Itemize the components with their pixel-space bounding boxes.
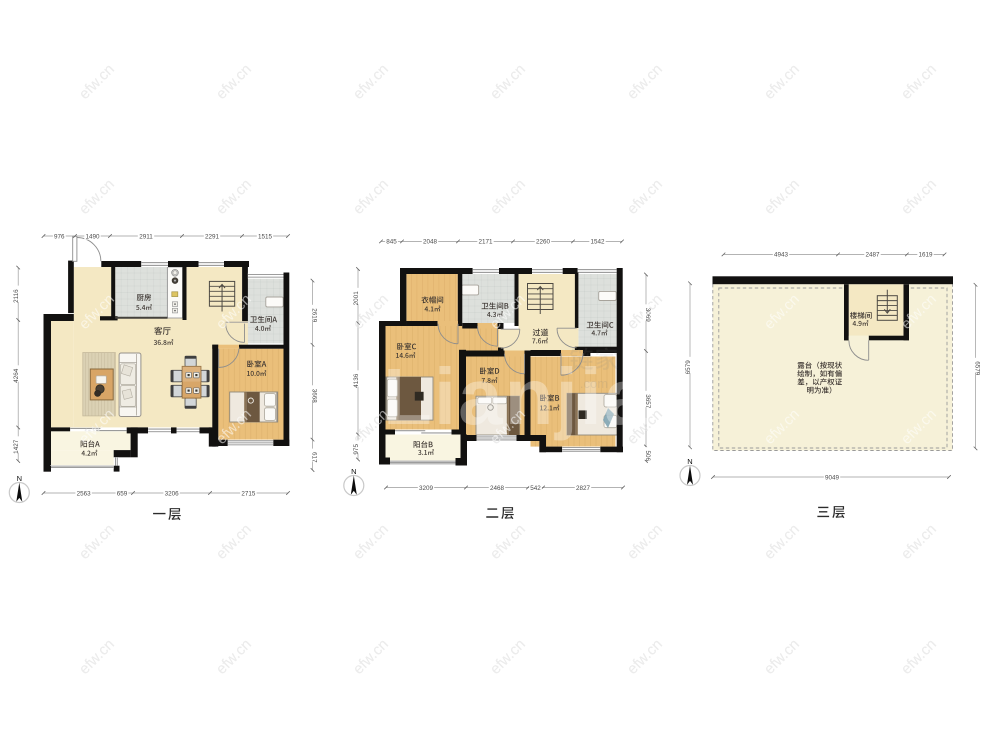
svg-text:.com: .com bbox=[580, 376, 608, 391]
svg-text:efw.cn: efw.cn bbox=[487, 636, 529, 678]
svg-text:6579: 6579 bbox=[685, 360, 692, 375]
svg-text:efw.cn: efw.cn bbox=[624, 291, 666, 333]
svg-text:efw.cn: efw.cn bbox=[487, 521, 529, 563]
svg-text:1490: 1490 bbox=[85, 233, 100, 240]
svg-text:4264: 4264 bbox=[13, 368, 20, 383]
svg-text:efw.cn: efw.cn bbox=[898, 176, 940, 218]
svg-text:542: 542 bbox=[530, 485, 541, 492]
svg-text:6579: 6579 bbox=[974, 361, 981, 376]
svg-text:efw.cn: efw.cn bbox=[898, 521, 940, 563]
svg-text:506: 506 bbox=[644, 451, 651, 462]
svg-text:3209: 3209 bbox=[419, 485, 434, 492]
svg-text:efw.cn: efw.cn bbox=[624, 636, 666, 678]
svg-text:N: N bbox=[687, 457, 692, 466]
svg-text:659: 659 bbox=[117, 490, 128, 497]
svg-text:2563: 2563 bbox=[77, 490, 92, 497]
svg-text:4136: 4136 bbox=[353, 373, 360, 388]
svg-text:N: N bbox=[351, 467, 356, 476]
svg-text:2260: 2260 bbox=[536, 239, 551, 246]
svg-text:efw.cn: efw.cn bbox=[624, 61, 666, 103]
svg-text:845: 845 bbox=[386, 239, 397, 246]
svg-text:efw.cn: efw.cn bbox=[350, 61, 392, 103]
svg-text:efw.cn: efw.cn bbox=[761, 521, 803, 563]
svg-text:1427: 1427 bbox=[13, 439, 20, 454]
svg-text:3206: 3206 bbox=[165, 490, 180, 497]
svg-text:efw.cn: efw.cn bbox=[350, 636, 392, 678]
svg-text:2116: 2116 bbox=[13, 289, 20, 303]
svg-text:efw.cn: efw.cn bbox=[213, 636, 255, 678]
svg-text:2619: 2619 bbox=[311, 308, 318, 323]
svg-text:efw.cn: efw.cn bbox=[898, 636, 940, 678]
svg-text:efw.cn: efw.cn bbox=[624, 176, 666, 218]
svg-text:976: 976 bbox=[54, 233, 65, 240]
svg-text:3668: 3668 bbox=[311, 389, 318, 404]
svg-text:1542: 1542 bbox=[590, 239, 605, 246]
svg-text:efw.cn: efw.cn bbox=[76, 176, 118, 218]
svg-text:efw.cn: efw.cn bbox=[213, 521, 255, 563]
svg-text:2468: 2468 bbox=[490, 485, 505, 492]
svg-text:efw.cn: efw.cn bbox=[761, 636, 803, 678]
svg-text:efw.cn: efw.cn bbox=[76, 636, 118, 678]
svg-text:efw.cn: efw.cn bbox=[487, 176, 529, 218]
svg-text:1515: 1515 bbox=[258, 233, 273, 240]
svg-text:efw.cn: efw.cn bbox=[898, 61, 940, 103]
svg-text:2001: 2001 bbox=[353, 291, 360, 306]
svg-text:2911: 2911 bbox=[139, 233, 153, 240]
svg-text:efw.cn: efw.cn bbox=[487, 61, 529, 103]
svg-text:2048: 2048 bbox=[423, 239, 438, 246]
svg-text:efw.cn: efw.cn bbox=[761, 176, 803, 218]
svg-text:efw.cn: efw.cn bbox=[213, 176, 255, 218]
svg-text:1619: 1619 bbox=[918, 252, 933, 259]
svg-text:N: N bbox=[17, 474, 22, 483]
svg-text:9049: 9049 bbox=[825, 474, 840, 481]
svg-text:efw.cn: efw.cn bbox=[76, 61, 118, 103]
svg-text:efw.cn: efw.cn bbox=[213, 61, 255, 103]
svg-text:Lianjia: Lianjia bbox=[383, 352, 650, 441]
svg-text:2715: 2715 bbox=[241, 490, 256, 497]
svg-text:617: 617 bbox=[311, 452, 318, 463]
svg-text:4943: 4943 bbox=[774, 252, 789, 259]
svg-text:2827: 2827 bbox=[576, 485, 591, 492]
svg-text:2487: 2487 bbox=[865, 252, 880, 259]
svg-text:efw.cn: efw.cn bbox=[350, 521, 392, 563]
svg-text:efw.cn: efw.cn bbox=[624, 521, 666, 563]
svg-text:2171: 2171 bbox=[478, 239, 493, 246]
svg-text:2291: 2291 bbox=[205, 233, 220, 240]
svg-text:efw.cn: efw.cn bbox=[350, 176, 392, 218]
svg-text:efw.cn: efw.cn bbox=[761, 61, 803, 103]
svg-text:efw.cn: efw.cn bbox=[76, 521, 118, 563]
